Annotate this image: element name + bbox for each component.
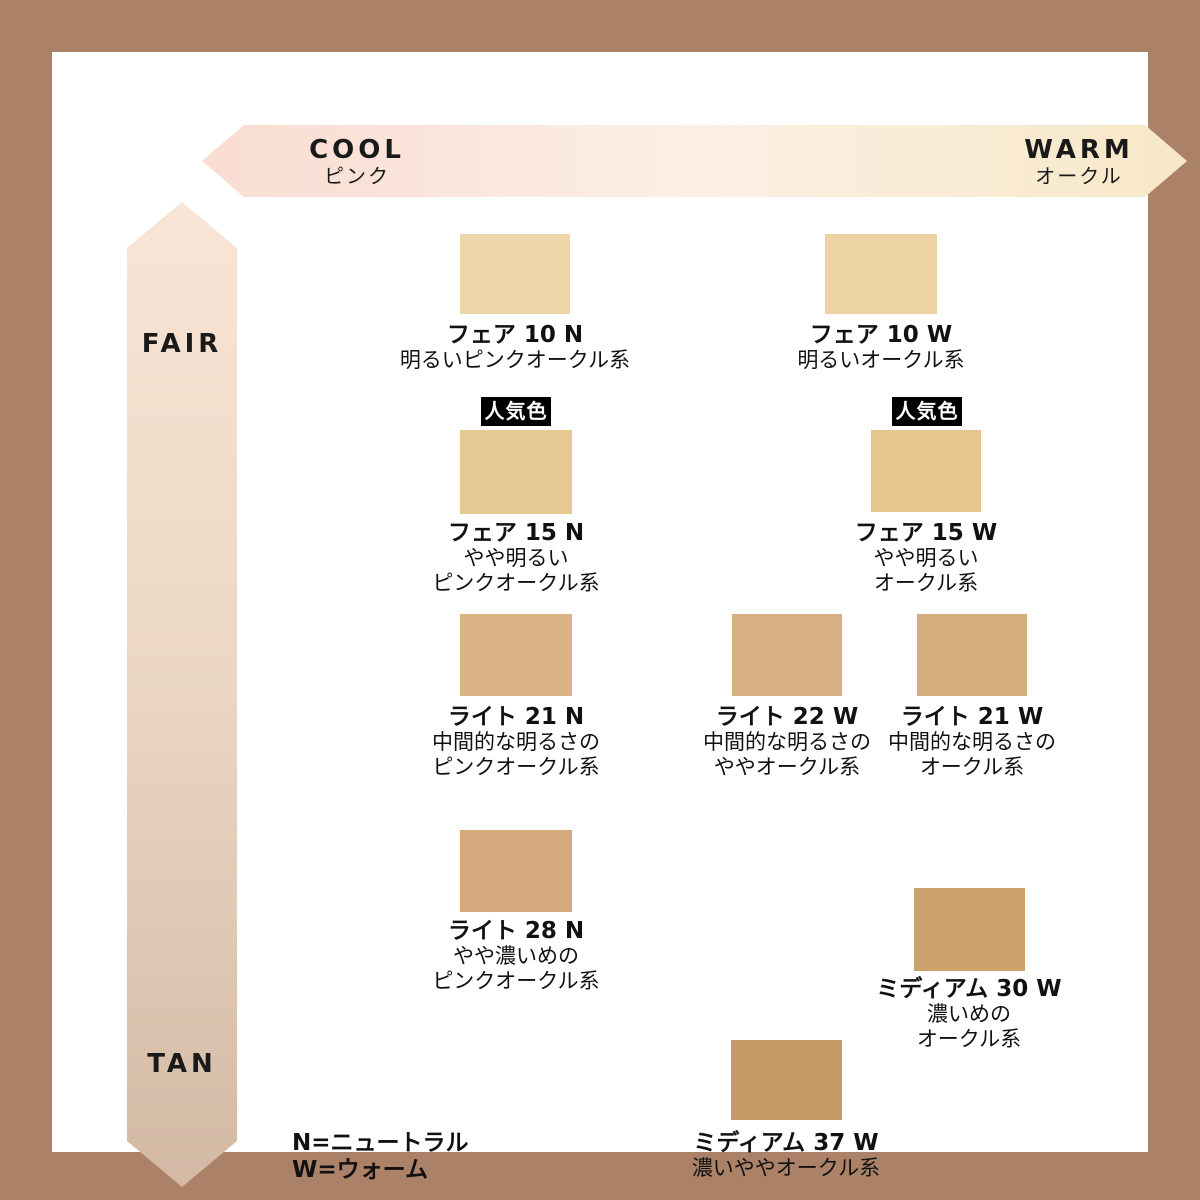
shade-label-fair-15-n: フェア 15 N やや明るい ピンクオークル系 — [356, 520, 676, 596]
shade-desc: 明るいピンクオークル系 — [355, 348, 675, 373]
shade-label-medium-37-w: ミディアム 37 W 濃いややオークル系 — [626, 1130, 946, 1181]
shade-desc: ピンクオークル系 — [356, 969, 676, 994]
popular-badge: 人気色 — [892, 397, 962, 426]
shade-swatch-light-21-w — [917, 614, 1027, 696]
warm-label: WARM — [1009, 136, 1149, 164]
shade-desc: 明るいオークル系 — [721, 348, 1041, 373]
shade-name: フェア 15 N — [356, 520, 676, 546]
cool-label: COOL — [287, 136, 427, 164]
tan-label: TAN — [127, 1050, 237, 1078]
legend-neutral: N=ニュートラル — [292, 1130, 592, 1157]
shade-swatch-medium-30-w — [914, 888, 1025, 971]
shade-swatch-light-21-n — [460, 614, 572, 696]
shade-label-medium-30-w: ミディアム 30 W 濃いめの オークル系 — [809, 976, 1129, 1052]
popular-badge: 人気色 — [481, 397, 551, 426]
shade-name: フェア 10 W — [721, 322, 1041, 348]
shade-desc: オークル系 — [809, 1027, 1129, 1052]
shade-swatch-fair-15-w — [871, 430, 981, 512]
shade-desc: やや濃いめの — [356, 944, 676, 969]
warm-sublabel: オークル — [1009, 164, 1149, 188]
shade-label-fair-10-n: フェア 10 N 明るいピンクオークル系 — [355, 322, 675, 373]
cool-sublabel: ピンク — [287, 164, 427, 188]
shade-label-fair-10-w: フェア 10 W 明るいオークル系 — [721, 322, 1041, 373]
shade-name: フェア 15 W — [766, 520, 1086, 546]
shade-desc: やや明るい — [766, 546, 1086, 571]
shade-swatch-medium-37-w — [731, 1040, 842, 1120]
shade-swatch-light-22-w — [732, 614, 842, 696]
shade-desc: オークル系 — [812, 755, 1132, 780]
shade-swatch-fair-15-n — [460, 430, 572, 514]
cool-axis-label: COOL ピンク — [287, 136, 427, 188]
shade-name: フェア 10 N — [355, 322, 675, 348]
shade-swatch-light-28-n — [460, 830, 572, 912]
shade-label-light-21-w: ライト 21 W 中間的な明るさの オークル系 — [812, 704, 1132, 780]
shade-label-light-28-n: ライト 28 N やや濃いめの ピンクオークル系 — [356, 918, 676, 994]
shade-desc: 中間的な明るさの — [812, 730, 1132, 755]
fair-label: FAIR — [127, 330, 237, 358]
chart-canvas: COOL ピンク WARM オークル FAIR TAN 人気色 人気色 フェア … — [52, 52, 1148, 1152]
shade-name: ライト 28 N — [356, 918, 676, 944]
shade-name: ミディアム 37 W — [626, 1130, 946, 1156]
shade-swatch-fair-10-n — [460, 234, 570, 314]
warm-axis-label: WARM オークル — [1009, 136, 1149, 188]
shade-name: ライト 21 W — [812, 704, 1132, 730]
shade-desc: 濃いややオークル系 — [626, 1156, 946, 1181]
shade-desc: やや明るい — [356, 546, 676, 571]
shade-label-fair-15-w: フェア 15 W やや明るい オークル系 — [766, 520, 1086, 596]
legend: N=ニュートラル W=ウォーム — [292, 1130, 592, 1184]
shade-desc: 濃いめの — [809, 1002, 1129, 1027]
shade-swatch-fair-10-w — [825, 234, 937, 314]
legend-warm: W=ウォーム — [292, 1157, 592, 1184]
shade-desc: オークル系 — [766, 571, 1086, 596]
shade-chart-page: { "page": { "border_color": "#ab8168", "… — [0, 0, 1200, 1200]
shade-desc: ピンクオークル系 — [356, 571, 676, 596]
shade-name: ミディアム 30 W — [809, 976, 1129, 1002]
